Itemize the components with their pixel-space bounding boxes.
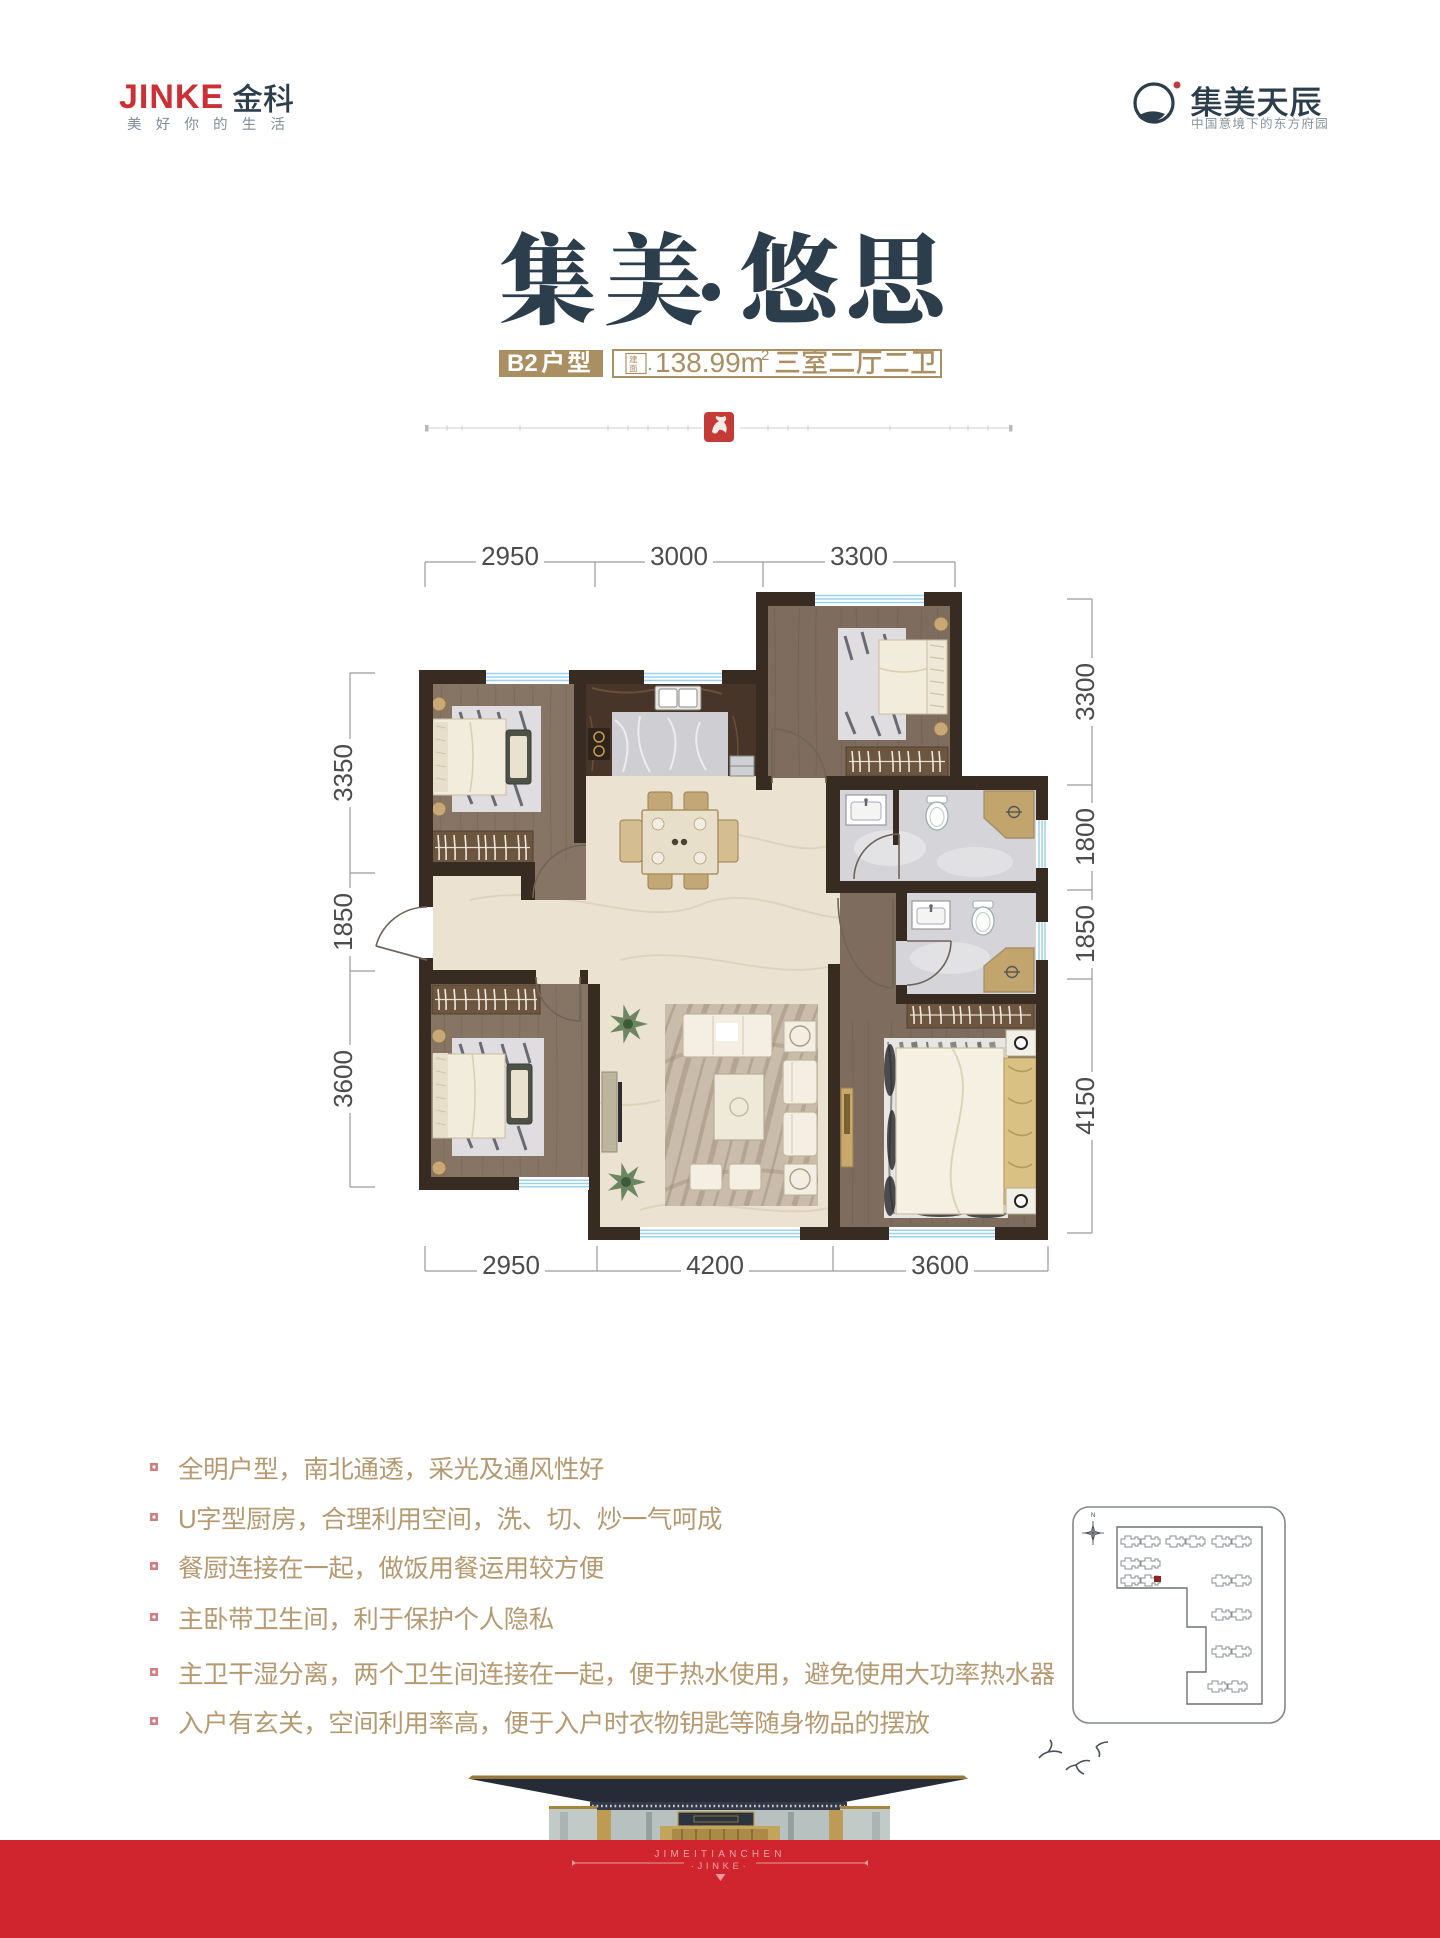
svg-text:JINKE: JINKE	[119, 78, 224, 116]
svg-text:N: N	[1091, 1513, 1095, 1519]
svg-text:2: 2	[761, 347, 769, 364]
svg-text:2950: 2950	[482, 1250, 540, 1280]
svg-text:3600: 3600	[911, 1250, 969, 1280]
svg-text:1800: 1800	[1070, 808, 1100, 866]
svg-text:3600: 3600	[328, 1050, 358, 1108]
svg-text:3300: 3300	[1070, 663, 1100, 721]
svg-text:3000: 3000	[650, 541, 708, 571]
svg-text:2950: 2950	[481, 541, 539, 571]
svg-text:4150: 4150	[1070, 1077, 1100, 1135]
svg-text:3350: 3350	[328, 744, 358, 802]
svg-text:1850: 1850	[1070, 905, 1100, 963]
svg-text:1850: 1850	[328, 893, 358, 951]
svg-text:4200: 4200	[686, 1250, 744, 1280]
svg-text:138.99m: 138.99m	[655, 347, 764, 378]
svg-text:B2: B2	[507, 350, 538, 377]
svg-text:U: U	[178, 1504, 197, 1534]
svg-text:·JINKE·: ·JINKE·	[691, 1861, 749, 1872]
svg-text:JIMEITIANCHEN: JIMEITIANCHEN	[654, 1849, 785, 1860]
svg-text:3300: 3300	[830, 541, 888, 571]
